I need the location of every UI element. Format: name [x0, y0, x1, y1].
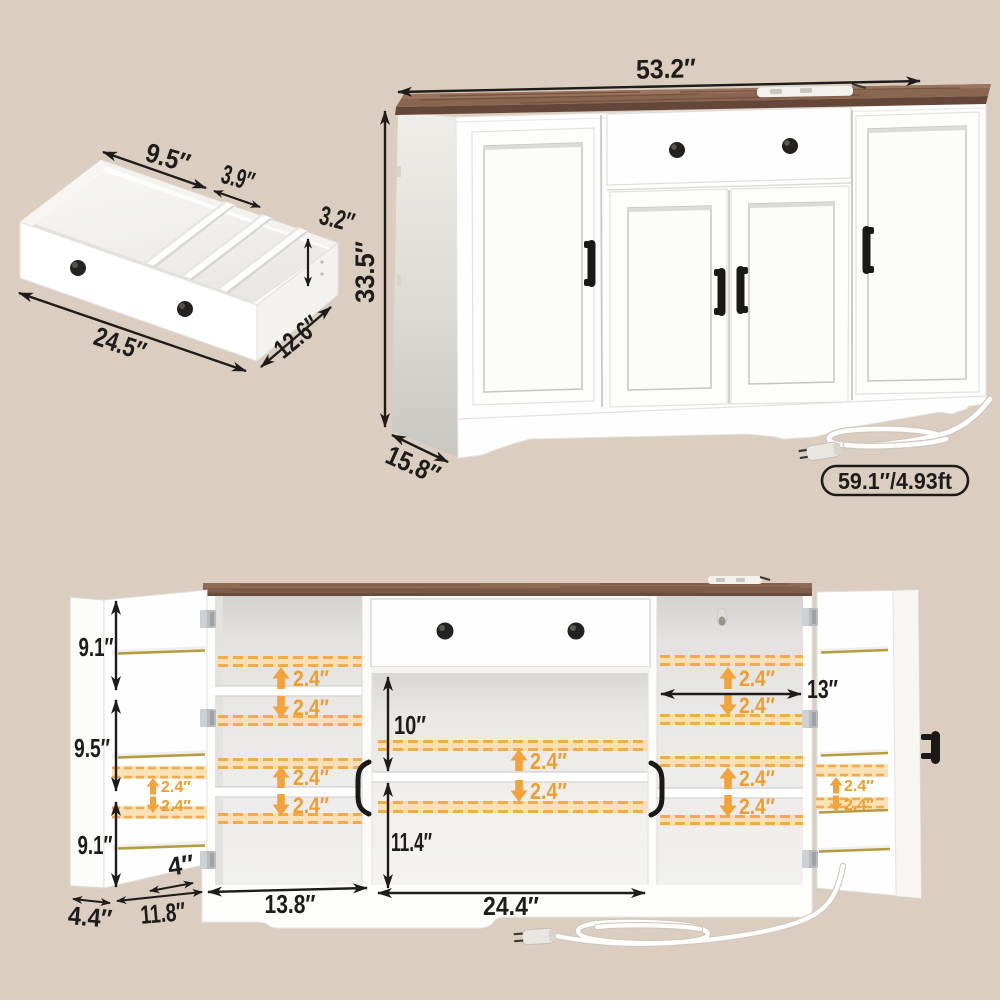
svg-text:59.1″/4.93ft: 59.1″/4.93ft [838, 468, 952, 494]
svg-text:33.5″: 33.5″ [350, 241, 380, 303]
svg-text:2.4″: 2.4″ [530, 778, 567, 804]
svg-text:4.4″: 4.4″ [67, 900, 113, 934]
svg-text:2.4″: 2.4″ [844, 797, 874, 814]
svg-text:2.4″: 2.4″ [293, 793, 329, 818]
svg-text:13.8″: 13.8″ [265, 889, 316, 919]
svg-text:2.4″: 2.4″ [161, 798, 191, 815]
svg-text:9.1″: 9.1″ [78, 830, 113, 860]
svg-text:2.4″: 2.4″ [739, 693, 775, 718]
svg-text:53.2″: 53.2″ [636, 53, 697, 85]
svg-text:2.4″: 2.4″ [739, 794, 775, 819]
svg-text:2.4″: 2.4″ [293, 695, 329, 720]
svg-text:2.4″: 2.4″ [293, 765, 329, 790]
svg-text:10″: 10″ [394, 710, 426, 740]
svg-text:11.8″: 11.8″ [139, 896, 186, 930]
svg-text:9.5″: 9.5″ [74, 733, 110, 763]
svg-text:2.4″: 2.4″ [530, 748, 567, 774]
svg-text:4″: 4″ [166, 848, 196, 881]
svg-text:2.4″: 2.4″ [844, 778, 874, 795]
svg-text:13″: 13″ [807, 674, 838, 704]
svg-text:2.4″: 2.4″ [161, 779, 191, 796]
svg-text:11.4″: 11.4″ [391, 827, 432, 857]
svg-text:24.4″: 24.4″ [483, 891, 539, 921]
svg-text:2.4″: 2.4″ [293, 666, 329, 691]
svg-text:2.4″: 2.4″ [739, 666, 775, 691]
svg-text:2.4″: 2.4″ [739, 766, 775, 791]
svg-text:9.1″: 9.1″ [79, 632, 114, 662]
